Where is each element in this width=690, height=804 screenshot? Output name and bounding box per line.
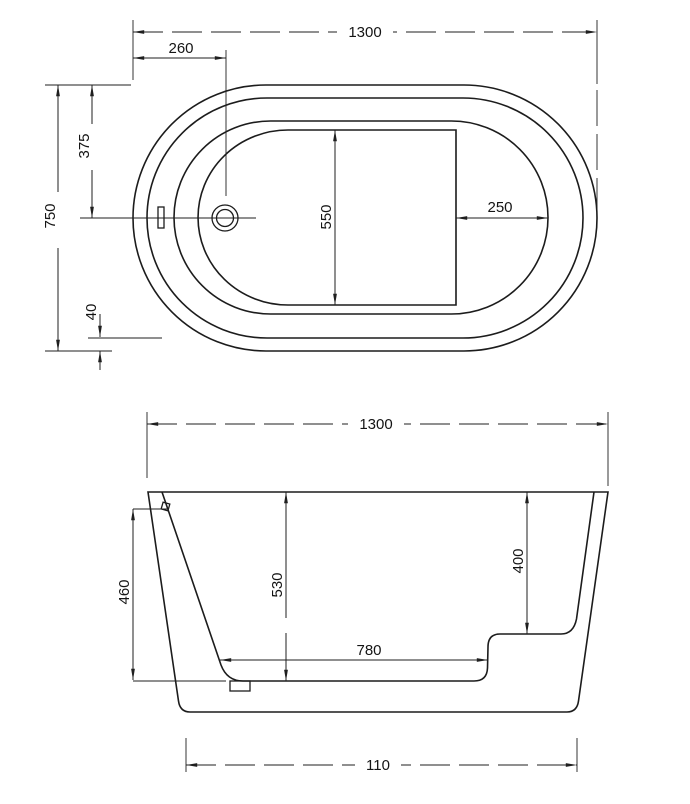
dim-plan-center-offset: 375 bbox=[76, 85, 93, 218]
tub-outer-profile bbox=[148, 492, 608, 712]
bathtub-drawing-canvas: 1300 260 750 375 bbox=[0, 0, 690, 804]
dim-side-floor-length: 780 bbox=[220, 642, 488, 660]
dim-label: 460 bbox=[116, 579, 133, 604]
dim-label: 530 bbox=[269, 572, 286, 597]
dim-label: 750 bbox=[42, 203, 59, 228]
dim-label: 40 bbox=[83, 304, 100, 321]
dim-label: 110 bbox=[366, 757, 390, 774]
overflow-hole bbox=[161, 502, 170, 511]
dim-label: 250 bbox=[487, 199, 512, 216]
overflow-slot bbox=[158, 207, 164, 228]
dim-plan-rim-width: 40 bbox=[83, 304, 162, 370]
dim-plan-floor-width: 550 bbox=[318, 130, 335, 305]
dim-label: 400 bbox=[510, 548, 527, 573]
dim-side-depth-overflow: 460 bbox=[116, 509, 226, 681]
dim-label: 780 bbox=[356, 642, 381, 659]
plan-view: 1300 260 750 375 bbox=[42, 20, 597, 370]
dim-label: 1300 bbox=[359, 416, 392, 433]
dim-side-base-length: 110 bbox=[186, 738, 577, 774]
dim-label: 1300 bbox=[348, 24, 381, 41]
dim-label: 550 bbox=[318, 204, 335, 229]
drain-fitting bbox=[230, 681, 250, 691]
dim-side-overall-length: 1300 bbox=[147, 412, 608, 486]
dim-side-overall-height: 530 bbox=[269, 492, 286, 681]
dim-label: 260 bbox=[168, 40, 193, 57]
technical-drawing-page: 1300 260 750 375 bbox=[0, 0, 690, 804]
dim-side-seat-height: 400 bbox=[510, 492, 527, 634]
dim-plan-seat-depth: 250 bbox=[456, 199, 548, 218]
side-view: 1300 460 530 400 bbox=[116, 412, 608, 774]
dim-label: 375 bbox=[76, 133, 93, 158]
